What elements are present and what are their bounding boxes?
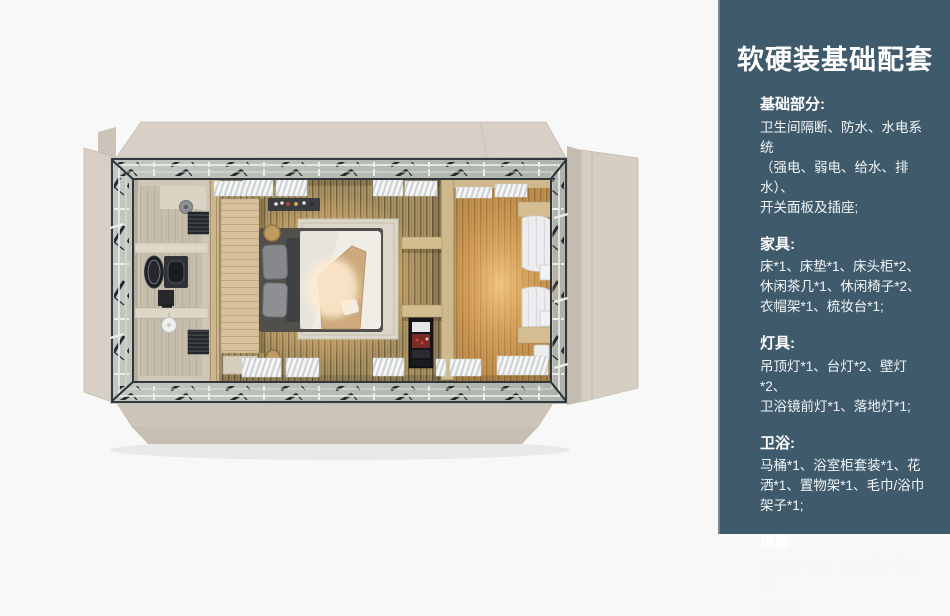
bottom-wall-flap [117, 403, 553, 428]
section-heading: 卫浴: [760, 434, 932, 454]
bathroom-shelf-1 [135, 243, 208, 253]
section-body: 吊顶灯*1、台灯*2、壁灯*2、 卫浴镜前灯*1、落地灯*1; [760, 357, 932, 417]
right-wall-flap [581, 150, 638, 402]
wall-lamp-2 [540, 311, 551, 326]
section-body: 马桶*1、浴室柜套装*1、花 洒*1、置物架*1、毛巾/浴巾 架子*1; [760, 456, 932, 516]
woven-basket-top [264, 225, 280, 241]
section-body: 卫生间隔断、防水、水电系统 （强电、弱电、给水、排水）、 开关面板及插座; [760, 118, 932, 218]
wall-shelf-with-bottles [268, 198, 320, 211]
headboard-cushion [286, 238, 300, 322]
section-heading: 家具: [760, 235, 932, 255]
wall-lamp-1 [540, 265, 551, 280]
package-section: 基础部分: 卫生间隔断、防水、水电系统 （强电、弱电、给水、排水）、 开关面板及… [760, 95, 932, 218]
page: 软硬装基础配套 基础部分: 卫生间隔断、防水、水电系统 （强电、弱电、给水、排水… [0, 0, 950, 534]
wall-shelf-2 [402, 305, 442, 317]
right-wall-shelf-top [518, 202, 551, 217]
section-body: 床*1、床垫*1、床头柜*2、 休闲茶几*1、休闲椅子*2、 衣帽架*1、梳妆台… [760, 257, 932, 317]
towel-radiator-bottom [188, 330, 210, 354]
truss-left [114, 178, 129, 384]
bottom-wall-flap-lip [133, 428, 537, 444]
top-wall-flap [116, 122, 566, 158]
left-wall-flap [84, 148, 112, 402]
package-section: 家具: 床*1、床垫*1、床头柜*2、 休闲茶几*1、休闲椅子*2、 衣帽架*1… [760, 235, 932, 318]
divider-wall [441, 179, 454, 380]
panel-title: 软硬装基础配套 [736, 44, 934, 76]
section-heading: 地面: [760, 533, 932, 553]
section-heading: 灯具: [760, 334, 932, 354]
pillow-left [262, 245, 287, 280]
towel-radiator-top [188, 212, 210, 234]
package-section: 灯具: 吊顶灯*1、台灯*2、壁灯*2、 卫浴镜前灯*1、落地灯*1; [760, 334, 932, 417]
panel-sections: 基础部分: 卫生间隔断、防水、水电系统 （强电、弱电、给水、排水）、 开关面板及… [736, 95, 934, 616]
headboard-wood-panel [221, 199, 264, 353]
truss-top [118, 162, 554, 176]
wall-shelf-1 [402, 237, 442, 249]
pillow-right [262, 283, 287, 318]
right-wall-shelf-bottom [518, 327, 551, 343]
lamp-hotspot [306, 258, 358, 318]
bathroom [133, 179, 210, 382]
floorplan-svg [0, 0, 718, 534]
floorplan-render [0, 0, 718, 534]
right-wall-edge [567, 146, 581, 405]
package-section: 卫浴: 马桶*1、浴室柜套装*1、花 洒*1、置物架*1、毛巾/浴巾 架子*1; [760, 434, 932, 517]
package-section: 地面: 强化木地板、卫生间防滑防潮 石塑板; [760, 533, 932, 616]
section-heading: 基础部分: [760, 95, 932, 115]
window-blind-panels-bottom [242, 356, 548, 377]
double-bed [259, 219, 398, 339]
section-body: 强化木地板、卫生间防滑防潮 石塑板; [760, 556, 932, 616]
black-storage-cabinet [409, 318, 433, 368]
bathroom-shelf-2 [135, 308, 208, 318]
truss-bottom [118, 386, 554, 400]
curtain-top [522, 216, 551, 272]
info-panel: 软硬装基础配套 基础部分: 卫生间隔断、防水、水电系统 （强电、弱电、给水、排水… [718, 0, 950, 534]
